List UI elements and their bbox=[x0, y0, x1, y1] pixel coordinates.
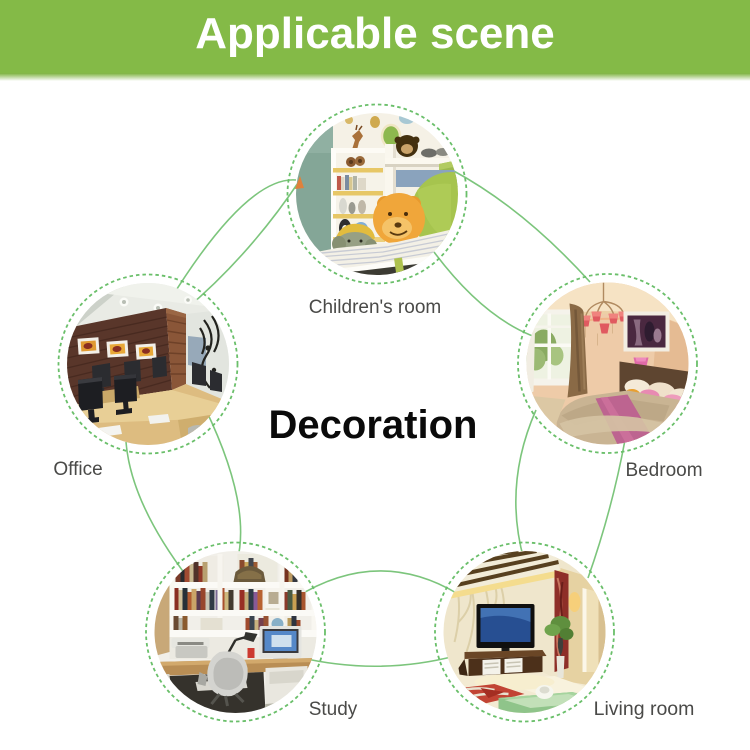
svg-text:Office: Office bbox=[53, 459, 102, 480]
svg-text:Bedroom: Bedroom bbox=[625, 460, 702, 481]
svg-text:Study: Study bbox=[309, 699, 358, 720]
svg-text:Living room: Living room bbox=[594, 698, 695, 720]
svg-text:Applicable scene: Applicable scene bbox=[195, 9, 554, 58]
svg-text:Children's room: Children's room bbox=[309, 297, 441, 318]
svg-text:Decoration: Decoration bbox=[269, 403, 478, 447]
